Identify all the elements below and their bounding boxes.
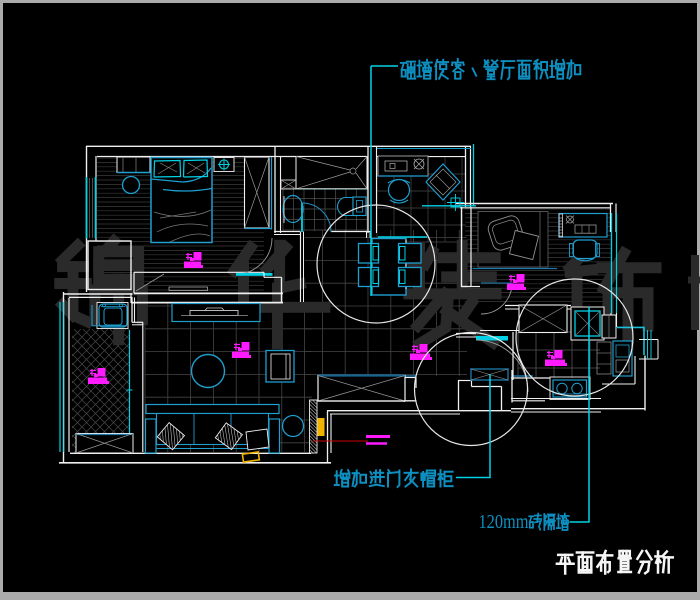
svg-text:120mm: 120mm [479,512,529,533]
